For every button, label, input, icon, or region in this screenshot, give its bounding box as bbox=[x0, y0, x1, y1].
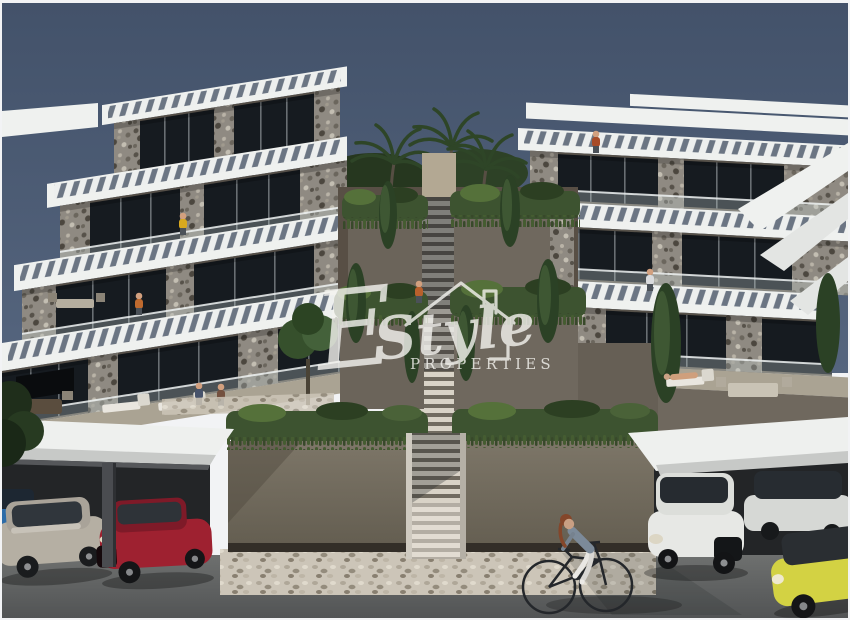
street-hedge bbox=[452, 400, 658, 448]
staircase-lower bbox=[406, 433, 466, 559]
person bbox=[135, 293, 143, 315]
person bbox=[415, 281, 423, 303]
street-hedge bbox=[226, 402, 428, 450]
person bbox=[646, 269, 654, 291]
photo-frame: E Style PROPERTIES bbox=[0, 0, 850, 620]
watermark-subtitle: PROPERTIES bbox=[410, 355, 555, 373]
scene-svg: E Style PROPERTIES bbox=[2, 3, 848, 618]
person bbox=[179, 213, 187, 235]
person bbox=[592, 131, 600, 153]
street-wall-right bbox=[454, 439, 654, 559]
stair-top-landing bbox=[422, 153, 456, 201]
patio-table bbox=[728, 383, 778, 397]
render-scene: E Style PROPERTIES bbox=[2, 3, 848, 618]
